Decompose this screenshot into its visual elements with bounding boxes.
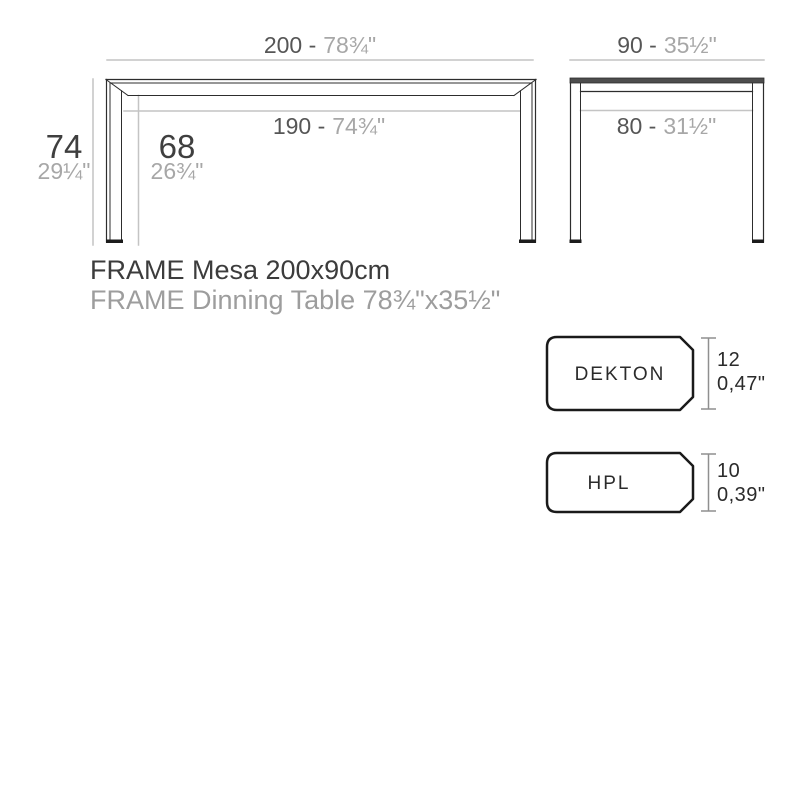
hpl-thickness-mm: 10 — [717, 459, 766, 483]
front-width-dimension: 200 -78¾" — [107, 34, 533, 57]
hpl-thickness-inch: 0,39" — [717, 483, 766, 507]
front-inner-width-cm: 190 - — [273, 113, 325, 139]
side-inner-width-dimension: 80 -31½" — [580, 115, 753, 138]
dimension-diagram-page: 200 -78¾" 90 -35½" 190 -74¾" 80 -31½" 74… — [0, 0, 800, 800]
table-clearance-inch: 26¾" — [142, 160, 212, 183]
side-view-drawing — [570, 60, 765, 243]
dekton-thickness: 12 0,47" — [717, 348, 766, 396]
front-width-inch: 78¾" — [323, 32, 376, 58]
side-width-dimension: 90 -35½" — [570, 34, 764, 57]
material-label-dekton: DEKTON — [547, 365, 693, 384]
product-subtitle: FRAME Dinning Table 78¾"x35½" — [90, 287, 500, 314]
dekton-thickness-inch: 0,47" — [717, 372, 766, 396]
side-width-inch: 35½" — [664, 32, 717, 58]
table-height-inch: 29¼" — [29, 160, 99, 183]
side-inner-width-inch: 31½" — [663, 113, 716, 139]
hpl-thickness: 10 0,39" — [717, 459, 766, 507]
front-inner-width-inch: 74¾" — [332, 113, 385, 139]
dekton-thickness-mm: 12 — [717, 348, 766, 372]
material-label-hpl: HPL — [547, 474, 671, 493]
front-width-cm: 200 - — [264, 32, 316, 58]
side-width-cm: 90 - — [617, 32, 657, 58]
side-inner-width-cm: 80 - — [617, 113, 657, 139]
product-title: FRAME Mesa 200x90cm — [90, 257, 390, 284]
